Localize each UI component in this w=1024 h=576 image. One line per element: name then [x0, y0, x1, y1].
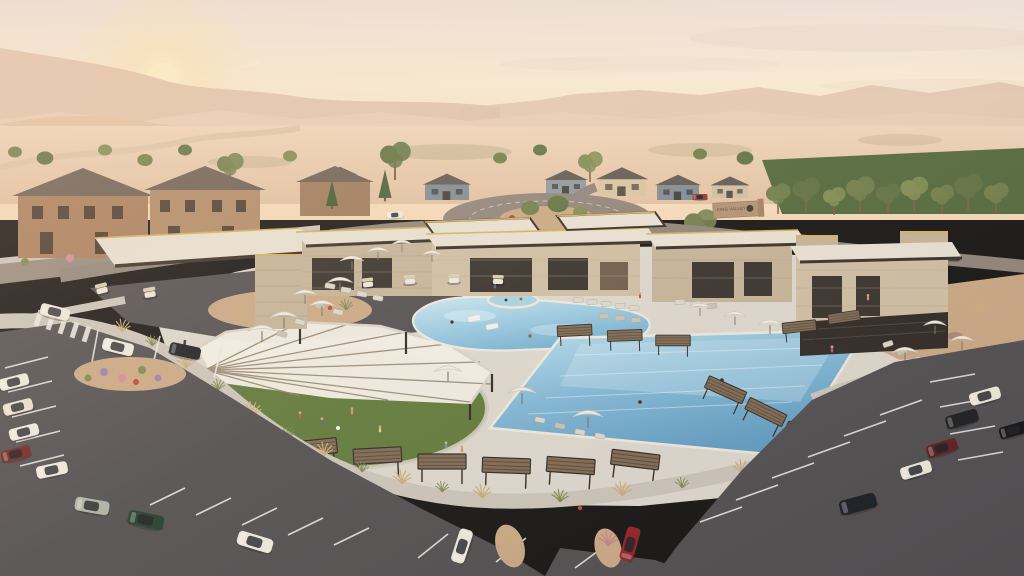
amenity-center-rendering: KING VALLEY	[0, 0, 1024, 576]
sunset-haze	[0, 0, 1024, 576]
rendering-canvas: KING VALLEY	[0, 0, 1024, 576]
